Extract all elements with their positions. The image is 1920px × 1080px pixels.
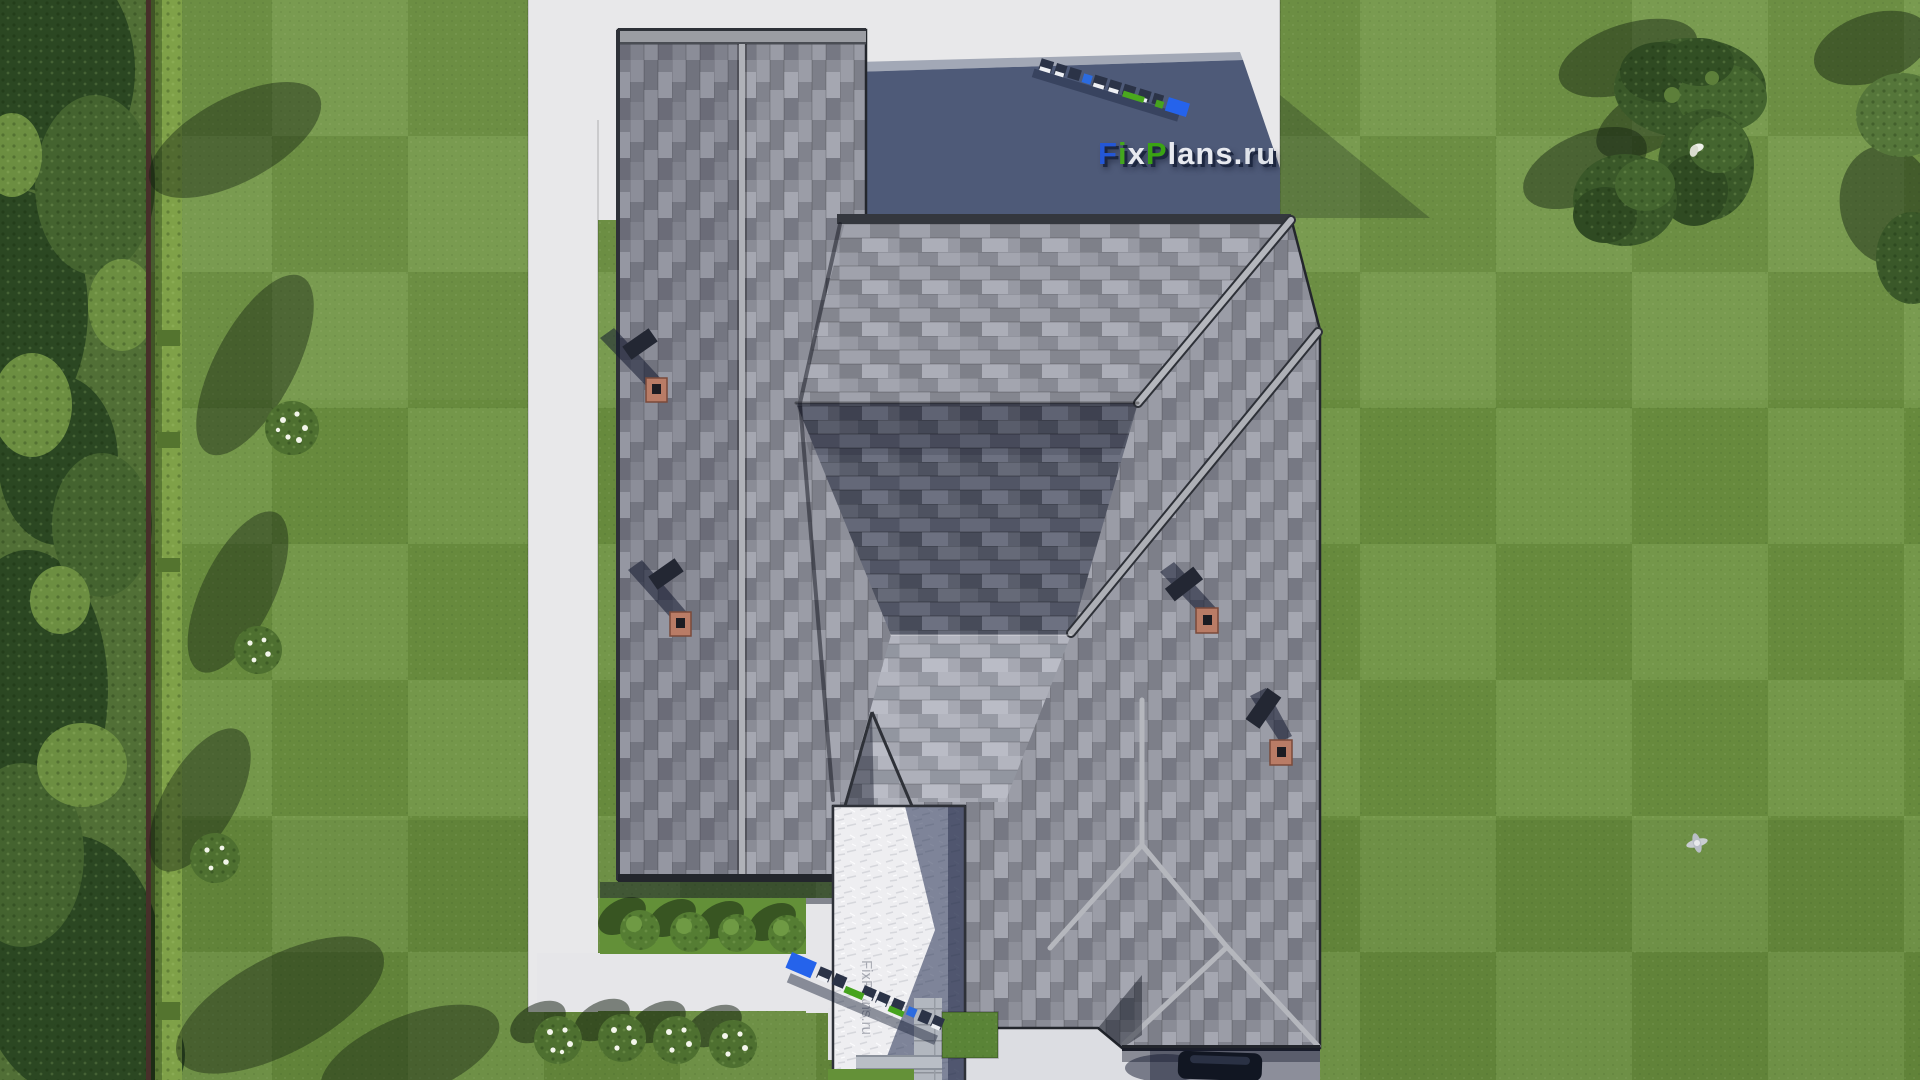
tree-canopy (1573, 154, 1677, 246)
watermark-letter: l (1168, 136, 1178, 172)
watermark-letter: a (1177, 136, 1195, 172)
watermark-letter: s (1215, 136, 1233, 172)
flowering-shrub (234, 626, 282, 674)
watermark-letter: x (1128, 136, 1146, 172)
watermark-letter: i (1118, 136, 1128, 172)
wing-ridge-line (739, 44, 745, 880)
flowering-shrub (190, 833, 240, 883)
flowering-shrub (265, 401, 319, 455)
watermark-letter: n (1195, 136, 1215, 172)
watermark-letter: u (1256, 136, 1276, 172)
watermark-letter: r (1243, 136, 1256, 172)
south-grass-strip (591, 889, 806, 954)
scene-canvas: FixPlans.ru (0, 0, 1920, 1080)
fence-line (146, 0, 151, 1080)
watermark-logo: FixPlans.ru (1098, 136, 1276, 172)
aerial-render: FixPlans.ru (0, 0, 1920, 1080)
watermark-letter: P (1146, 136, 1168, 172)
watermark-letter: . (1234, 136, 1244, 172)
watermark-letter: F (1098, 136, 1118, 172)
